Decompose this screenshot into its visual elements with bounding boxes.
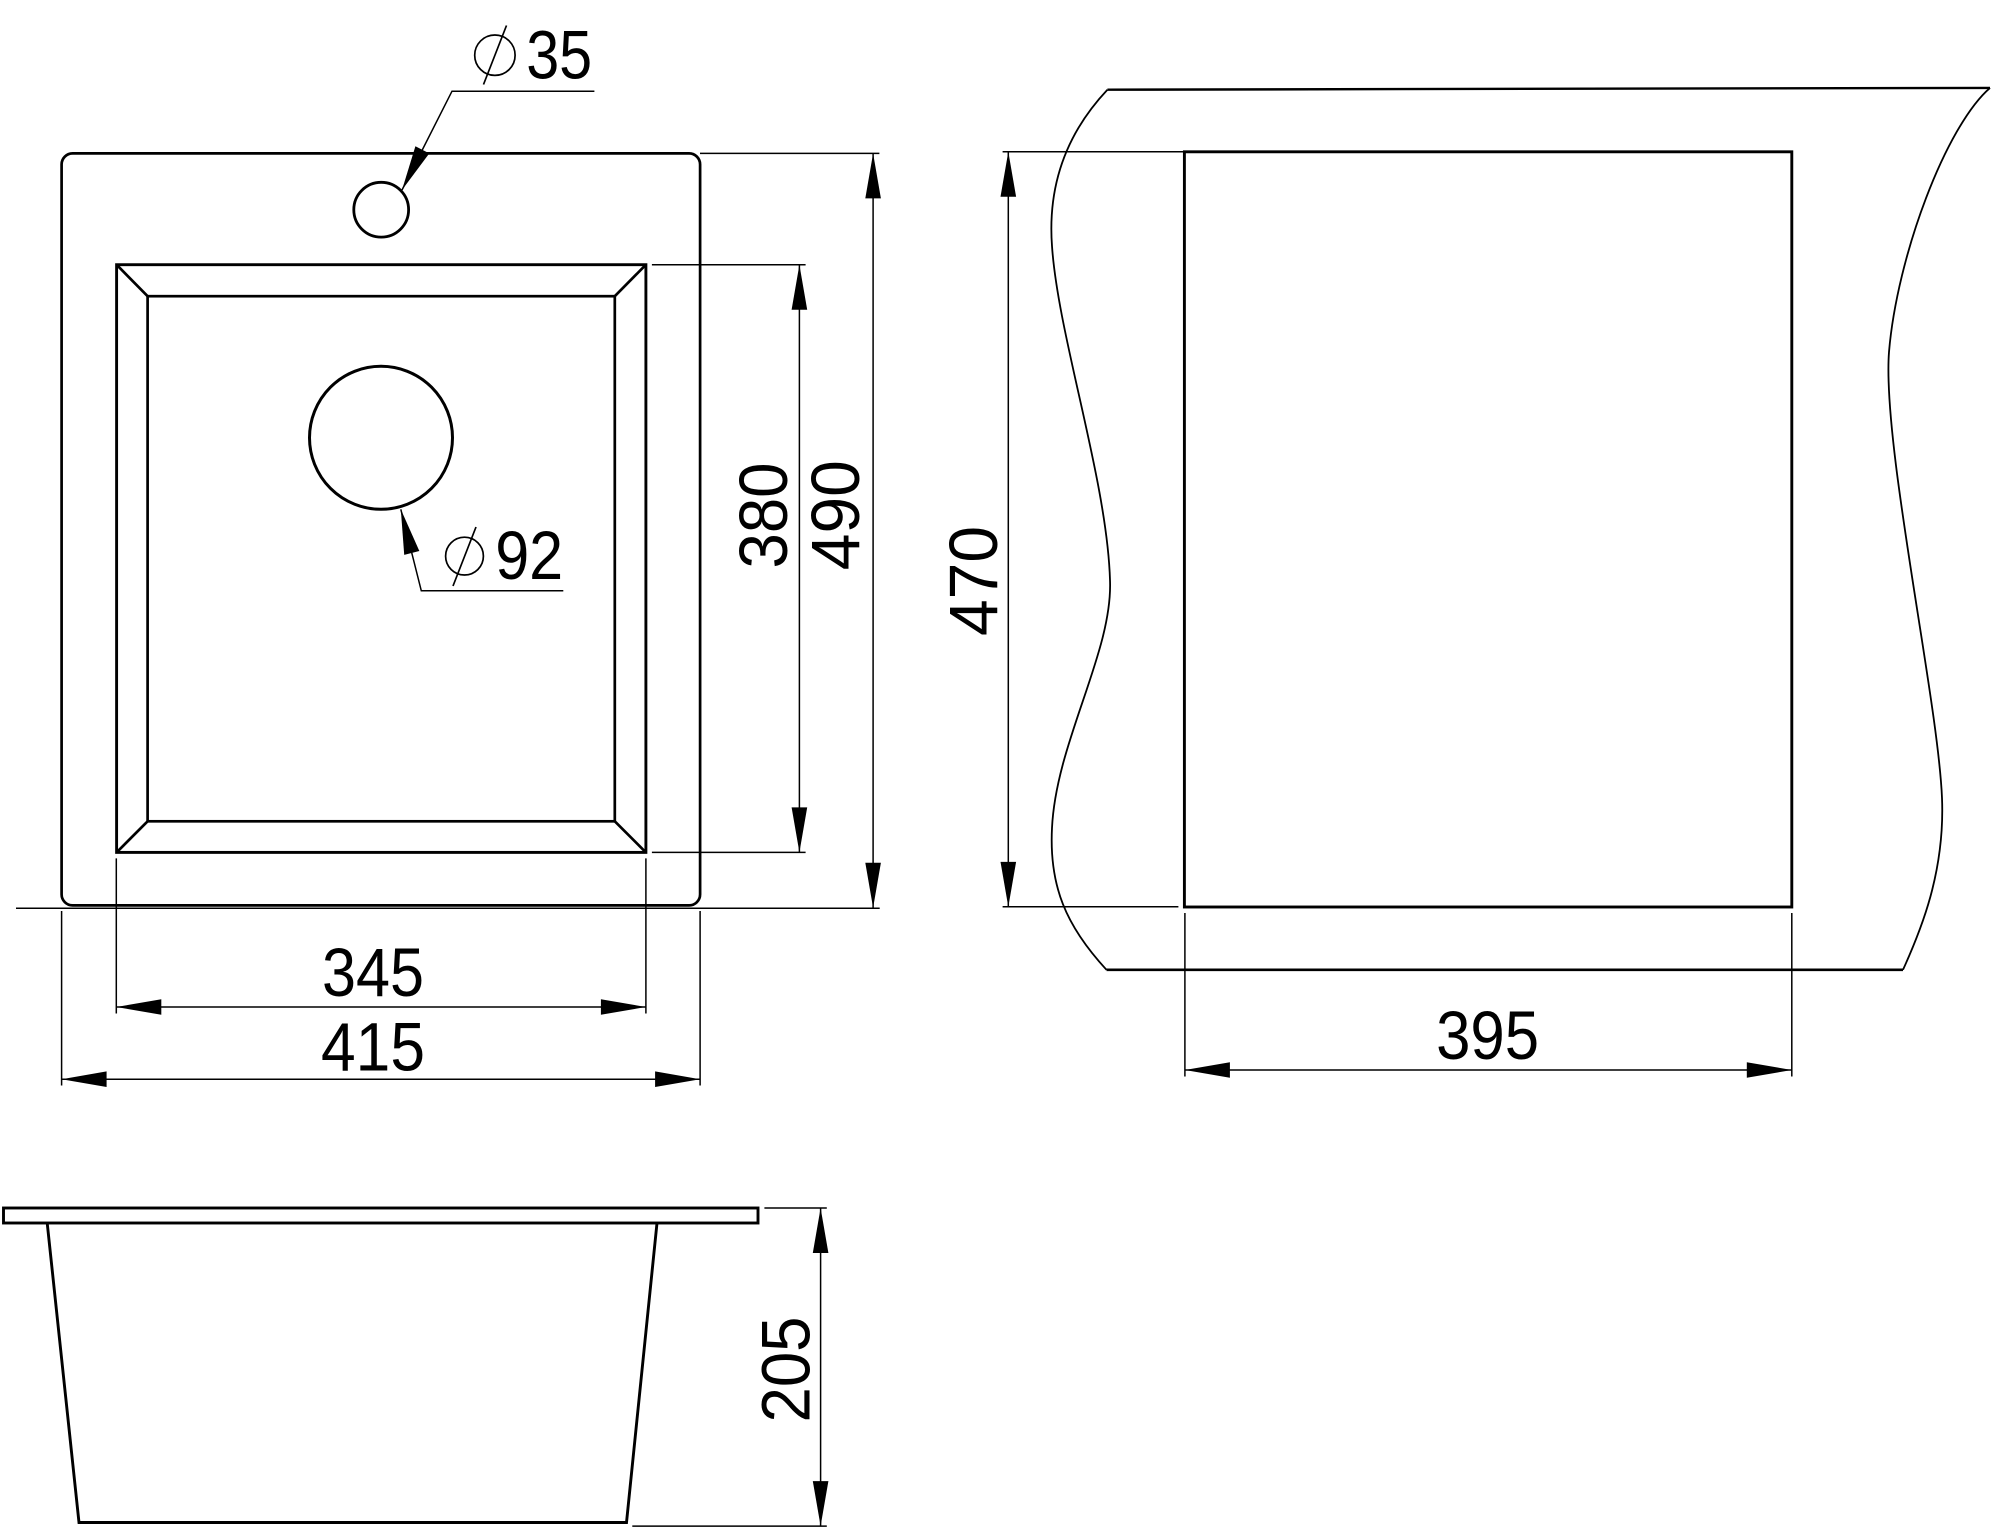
svg-text:395: 395 xyxy=(1436,997,1539,1074)
svg-text:92: 92 xyxy=(495,517,563,594)
svg-text:415: 415 xyxy=(321,1008,425,1085)
svg-text:490: 490 xyxy=(797,460,874,570)
svg-text:380: 380 xyxy=(725,463,802,569)
svg-text:345: 345 xyxy=(322,934,424,1011)
svg-text:470: 470 xyxy=(935,526,1012,636)
svg-text:205: 205 xyxy=(747,1317,824,1423)
svg-text:35: 35 xyxy=(526,16,592,93)
